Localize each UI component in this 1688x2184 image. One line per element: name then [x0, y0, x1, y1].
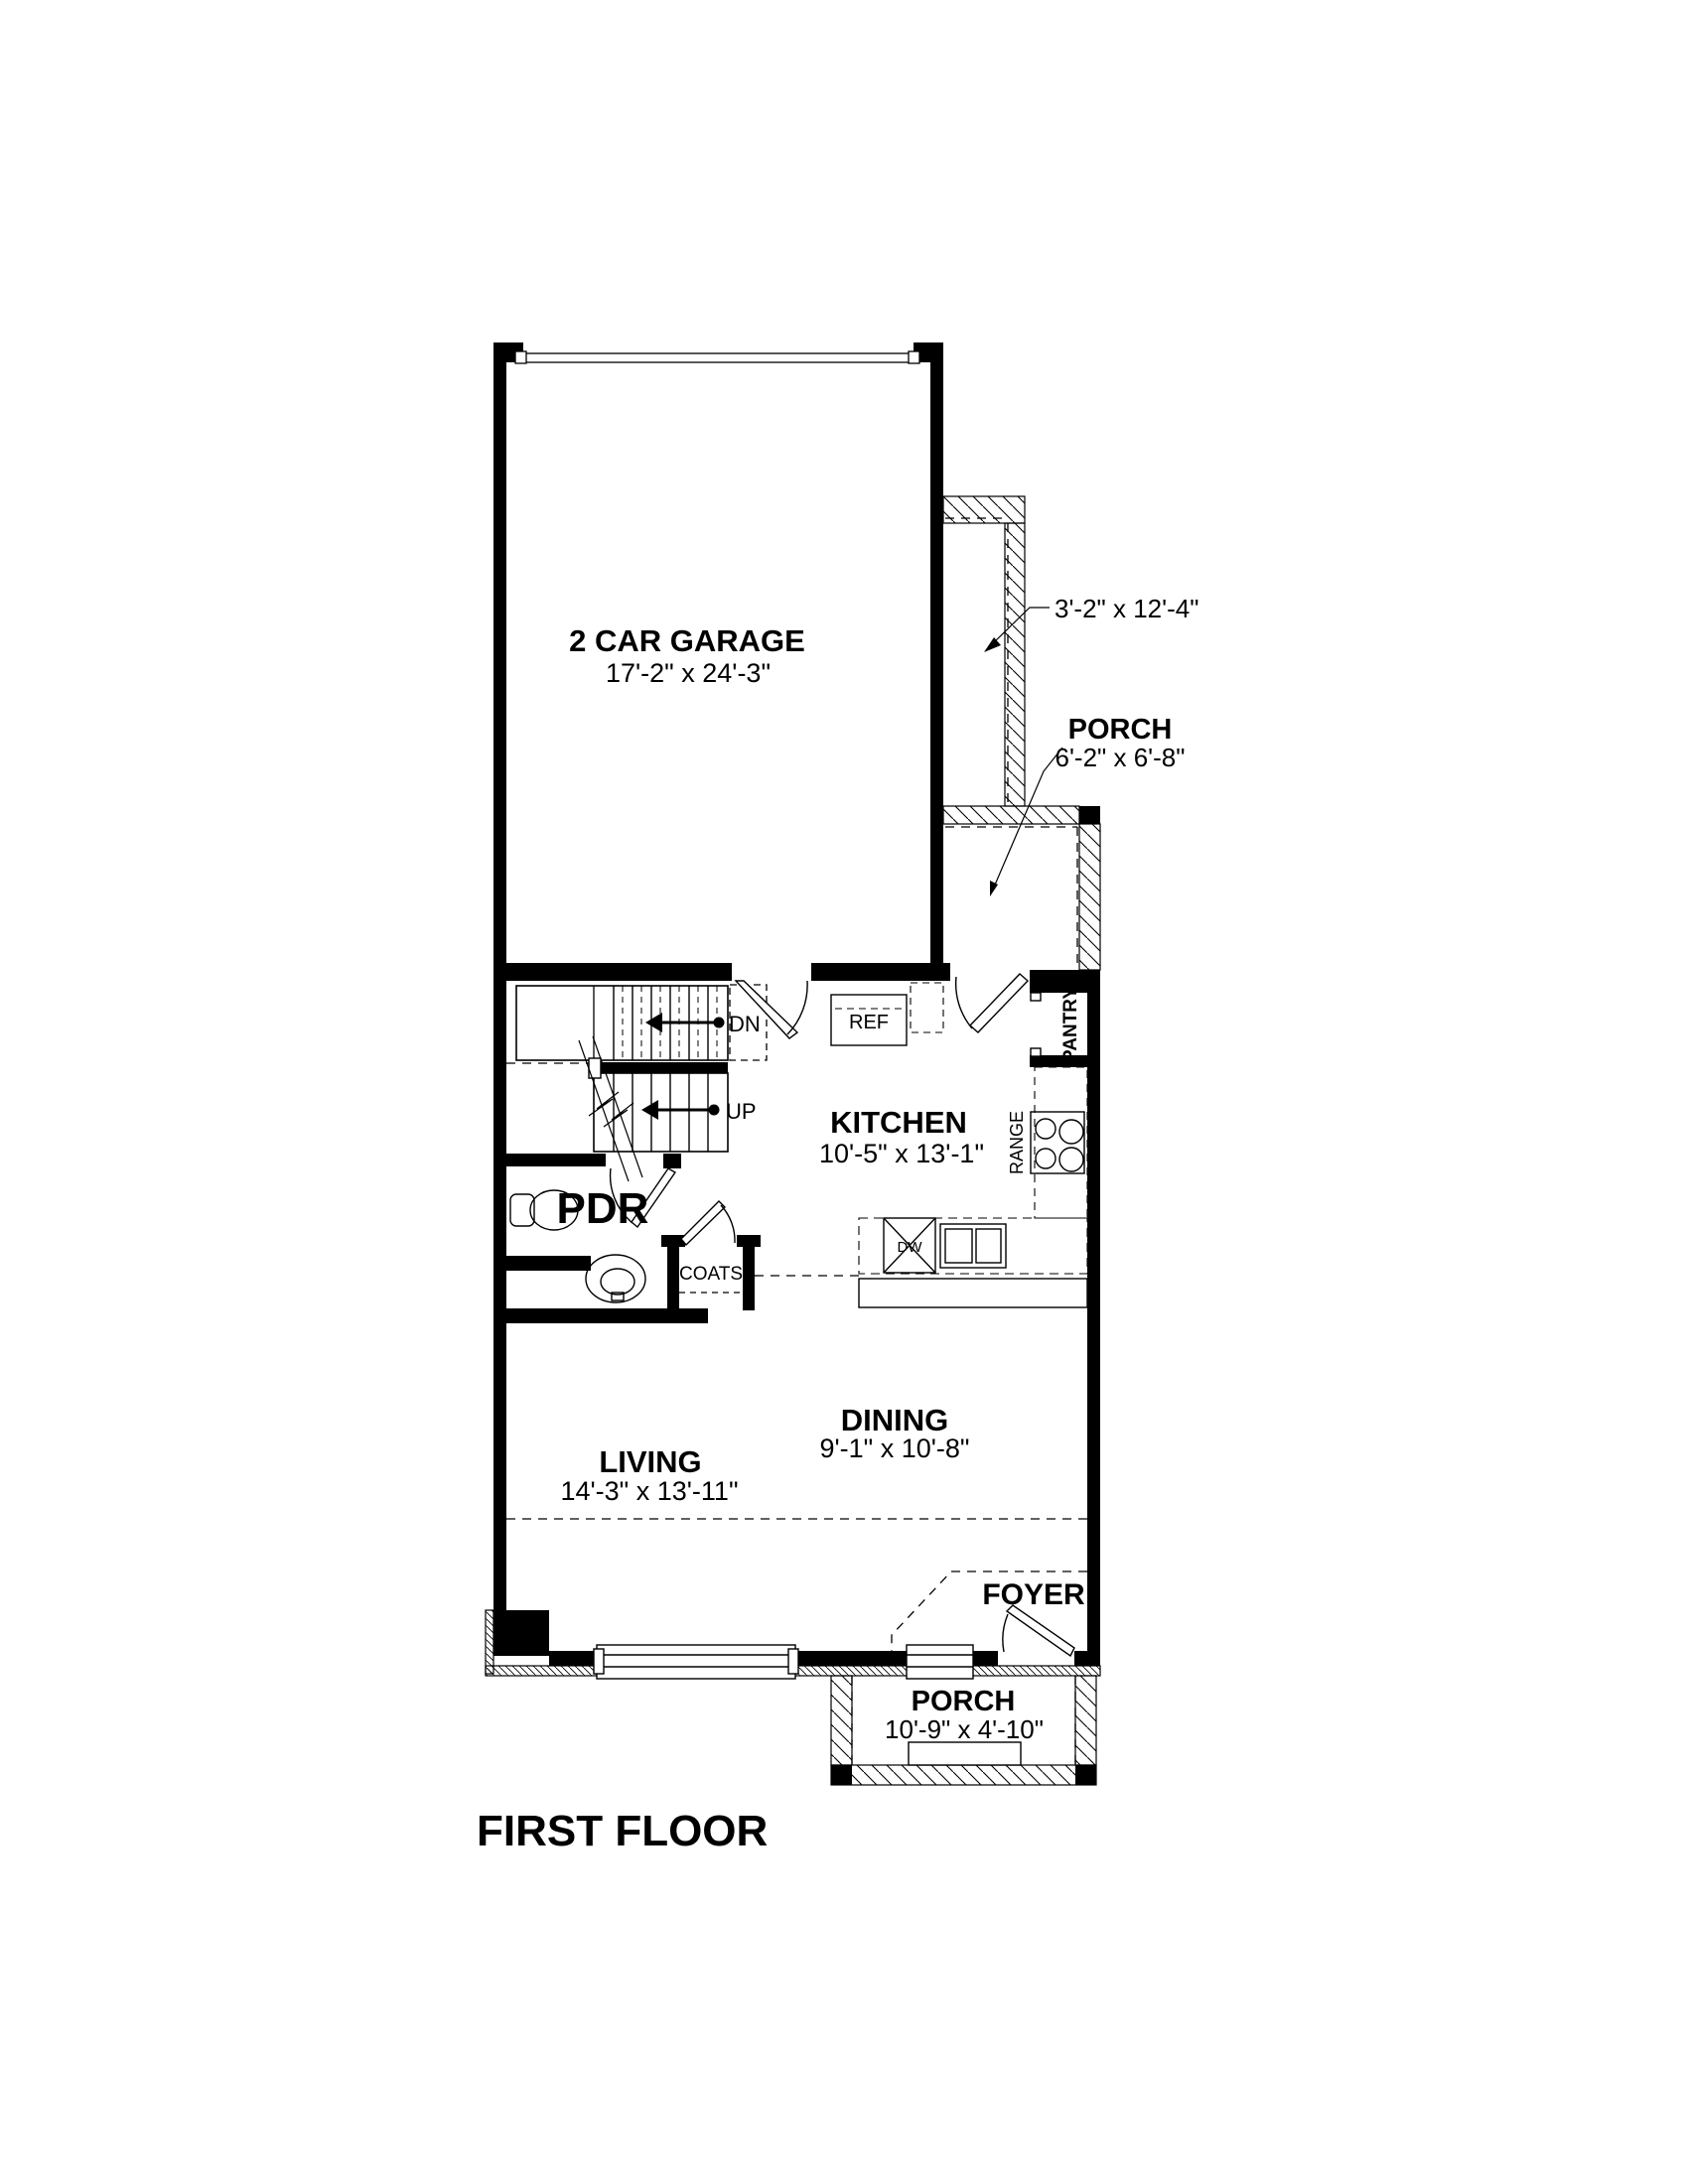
living-label: LIVING	[599, 1444, 701, 1479]
kitchen-cabinet-dashed	[911, 983, 943, 1032]
bottom-left-corner-block	[493, 1610, 549, 1656]
stair-up-label: UP	[726, 1099, 757, 1124]
dining-dims: 9'-1" x 10'-8"	[819, 1433, 969, 1463]
garage-right-wall	[930, 342, 943, 981]
front-porch-right-post	[1075, 1765, 1096, 1785]
range-label: RANGE	[1007, 1111, 1027, 1174]
kitchen-bar-counter	[859, 1279, 1087, 1307]
living-top-wall	[493, 1308, 708, 1323]
kitchen-side-counter	[1031, 1067, 1087, 1218]
kitchen-porch-door	[956, 974, 1028, 1032]
kitchen-top-wall	[811, 963, 950, 981]
floor-plan-drawing: 2 CAR GARAGE 17'-2" x 24'-3" 3'-2" x 12'…	[0, 0, 1688, 2184]
dining-label: DINING	[841, 1403, 949, 1437]
side-porch-top-strip	[943, 806, 1079, 824]
stair-dn-arrow	[645, 1013, 725, 1032]
bottom-wall-seg2	[795, 1651, 909, 1666]
foyer-label: FOYER	[982, 1578, 1085, 1611]
left-wall	[493, 342, 506, 1656]
foyer-window	[907, 1645, 973, 1679]
dw-label: DW	[898, 1239, 923, 1256]
stair-dn-label: DN	[729, 1012, 761, 1036]
page-title: FIRST FLOOR	[477, 1807, 768, 1855]
toilet	[586, 1255, 645, 1302]
front-porch-label: PORCH	[912, 1686, 1016, 1717]
garage-dims: 17'-2" x 24'-3"	[606, 658, 771, 688]
garage-bottom-wall	[493, 963, 732, 981]
garage-door	[515, 351, 919, 363]
bottom-wall-seg4	[1074, 1651, 1100, 1666]
front-porch-step	[909, 1742, 1021, 1765]
ref-label: REF	[849, 1012, 889, 1033]
coats-label: COATS	[679, 1264, 743, 1285]
pdr-top-wall	[501, 1154, 606, 1166]
garage-label: 2 CAR GARAGE	[569, 623, 805, 658]
kitchen-label: KITCHEN	[830, 1105, 967, 1140]
pantry-label: PANTRY	[1060, 987, 1081, 1062]
coats-right-jamb	[737, 1235, 761, 1247]
pdr-mid-wall	[501, 1256, 591, 1271]
pantry-jamb-top	[1031, 993, 1041, 1001]
walkway-dims: 3'-2" x 12'-4"	[1055, 594, 1198, 623]
front-porch-right-column	[1075, 1676, 1096, 1765]
side-porch-right-strip	[1079, 824, 1100, 970]
pdr-door-jamb	[663, 1154, 681, 1168]
pantry-jamb-bottom	[1031, 1048, 1041, 1056]
kitchen-bottom-counter	[859, 1218, 1087, 1274]
pdr-label: PDR	[557, 1184, 649, 1233]
kitchen-sink	[940, 1224, 1006, 1268]
foundation-left-sliver	[486, 1610, 493, 1674]
staircase	[516, 986, 728, 1181]
living-window	[594, 1645, 798, 1679]
bottom-wall-seg1	[549, 1651, 597, 1666]
living-dims: 14'-3" x 13'-11"	[560, 1476, 738, 1506]
coats-left-jamb	[661, 1235, 685, 1247]
side-porch-corner-post	[1079, 806, 1100, 824]
right-wall	[1087, 993, 1100, 1666]
kitchen-dims: 10'-5" x 13'-1"	[819, 1139, 984, 1168]
stair-up-treads	[614, 1073, 708, 1152]
side-porch-label: PORCH	[1068, 714, 1173, 746]
front-entry-door	[1003, 1605, 1074, 1656]
walkway-top-strip	[943, 496, 1025, 523]
fixtures	[510, 983, 1087, 1307]
floor-plan-page: 2 CAR GARAGE 17'-2" x 24'-3" 3'-2" x 12'…	[0, 0, 1688, 2184]
side-porch-dims: 6'-2" x 6'-8"	[1055, 743, 1186, 772]
coats-door	[681, 1201, 735, 1245]
bottom-wall-seg3	[971, 1651, 998, 1666]
front-porch-bottom-strip	[831, 1765, 1096, 1785]
front-porch-dims: 10'-9" x 4'-10"	[885, 1714, 1044, 1744]
garage-door-jamb-left	[515, 351, 526, 363]
garage-door-jamb-right	[909, 351, 919, 363]
front-porch-left-post	[831, 1765, 852, 1785]
front-porch-left-column	[831, 1676, 852, 1765]
stair-divider-wall	[594, 1062, 728, 1073]
